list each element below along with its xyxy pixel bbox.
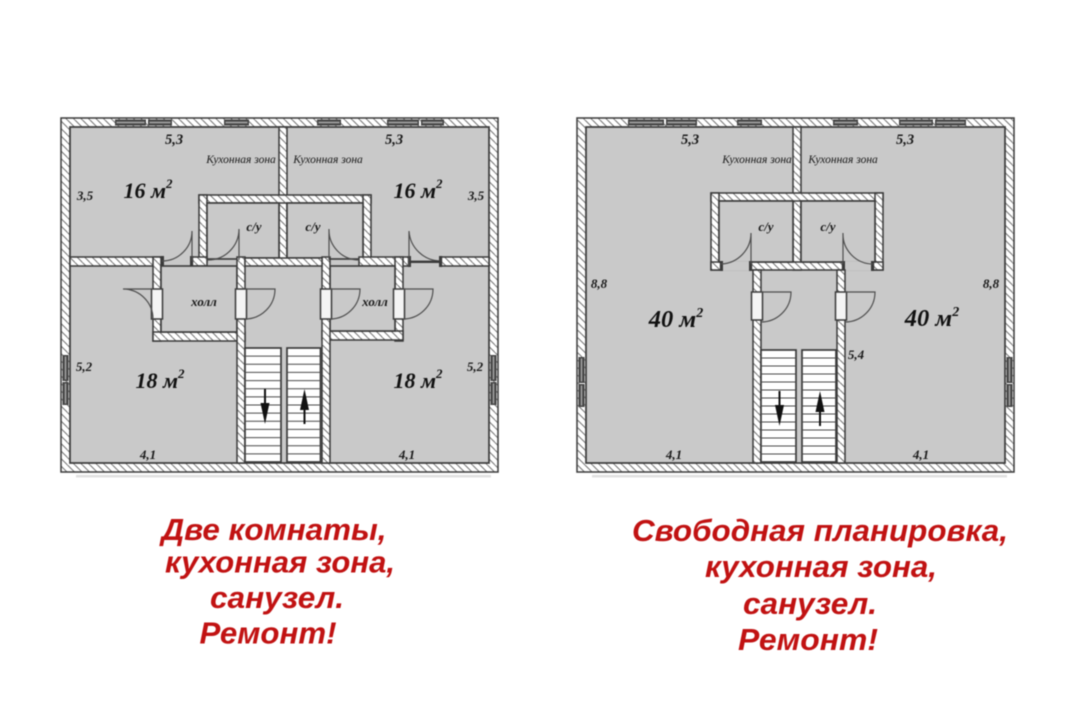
svg-text:с/у: с/у: [758, 219, 773, 234]
svg-text:холл: холл: [190, 294, 217, 309]
svg-text:5,4: 5,4: [848, 347, 865, 362]
svg-text:Две комнаты,: Две комнаты,: [158, 512, 386, 547]
svg-text:5,3: 5,3: [681, 132, 699, 148]
svg-text:16 м2: 16 м2: [393, 176, 443, 203]
svg-text:18 м2: 18 м2: [135, 366, 185, 393]
svg-text:Кухонная зона: Кухонная зона: [807, 154, 878, 166]
svg-text:5,3: 5,3: [165, 132, 183, 148]
svg-text:40 м2: 40 м2: [904, 305, 959, 332]
svg-text:4,1: 4,1: [912, 447, 929, 462]
svg-text:5,3: 5,3: [385, 132, 403, 148]
svg-text:холл: холл: [361, 294, 388, 309]
svg-text:8,8: 8,8: [591, 276, 608, 291]
svg-text:Кухонная зона: Кухонная зона: [205, 154, 276, 166]
svg-text:санузел.: санузел.: [743, 586, 877, 621]
svg-text:18 м2: 18 м2: [393, 366, 443, 393]
svg-text:с/у: с/у: [820, 219, 835, 234]
svg-text:с/у: с/у: [305, 219, 320, 234]
svg-text:4,1: 4,1: [665, 447, 682, 462]
svg-text:с/у: с/у: [246, 219, 261, 234]
svg-text:4,1: 4,1: [398, 447, 415, 462]
svg-text:40 м2: 40 м2: [648, 306, 703, 333]
svg-text:Кухонная зона: Кухонная зона: [292, 154, 363, 166]
svg-text:16 м2: 16 м2: [123, 176, 173, 203]
svg-text:Свободная планировка,: Свободная планировка,: [632, 513, 1008, 548]
svg-text:4,1: 4,1: [139, 447, 156, 462]
svg-text:3,5: 3,5: [467, 188, 485, 203]
svg-text:Ремонт!: Ремонт!: [200, 616, 337, 651]
svg-text:3,5: 3,5: [76, 188, 94, 203]
svg-text:кухонная зона,: кухонная зона,: [705, 549, 937, 584]
svg-text:Ремонт!: Ремонт!: [738, 622, 878, 657]
svg-text:5,2: 5,2: [467, 359, 484, 374]
svg-text:5,3: 5,3: [896, 132, 914, 148]
svg-text:5,2: 5,2: [76, 359, 93, 374]
svg-text:кухонная зона,: кухонная зона,: [165, 545, 395, 580]
svg-text:8,8: 8,8: [983, 276, 1000, 291]
svg-text:Кухонная зона: Кухонная зона: [721, 154, 792, 166]
svg-text:санузел.: санузел.: [210, 580, 344, 615]
